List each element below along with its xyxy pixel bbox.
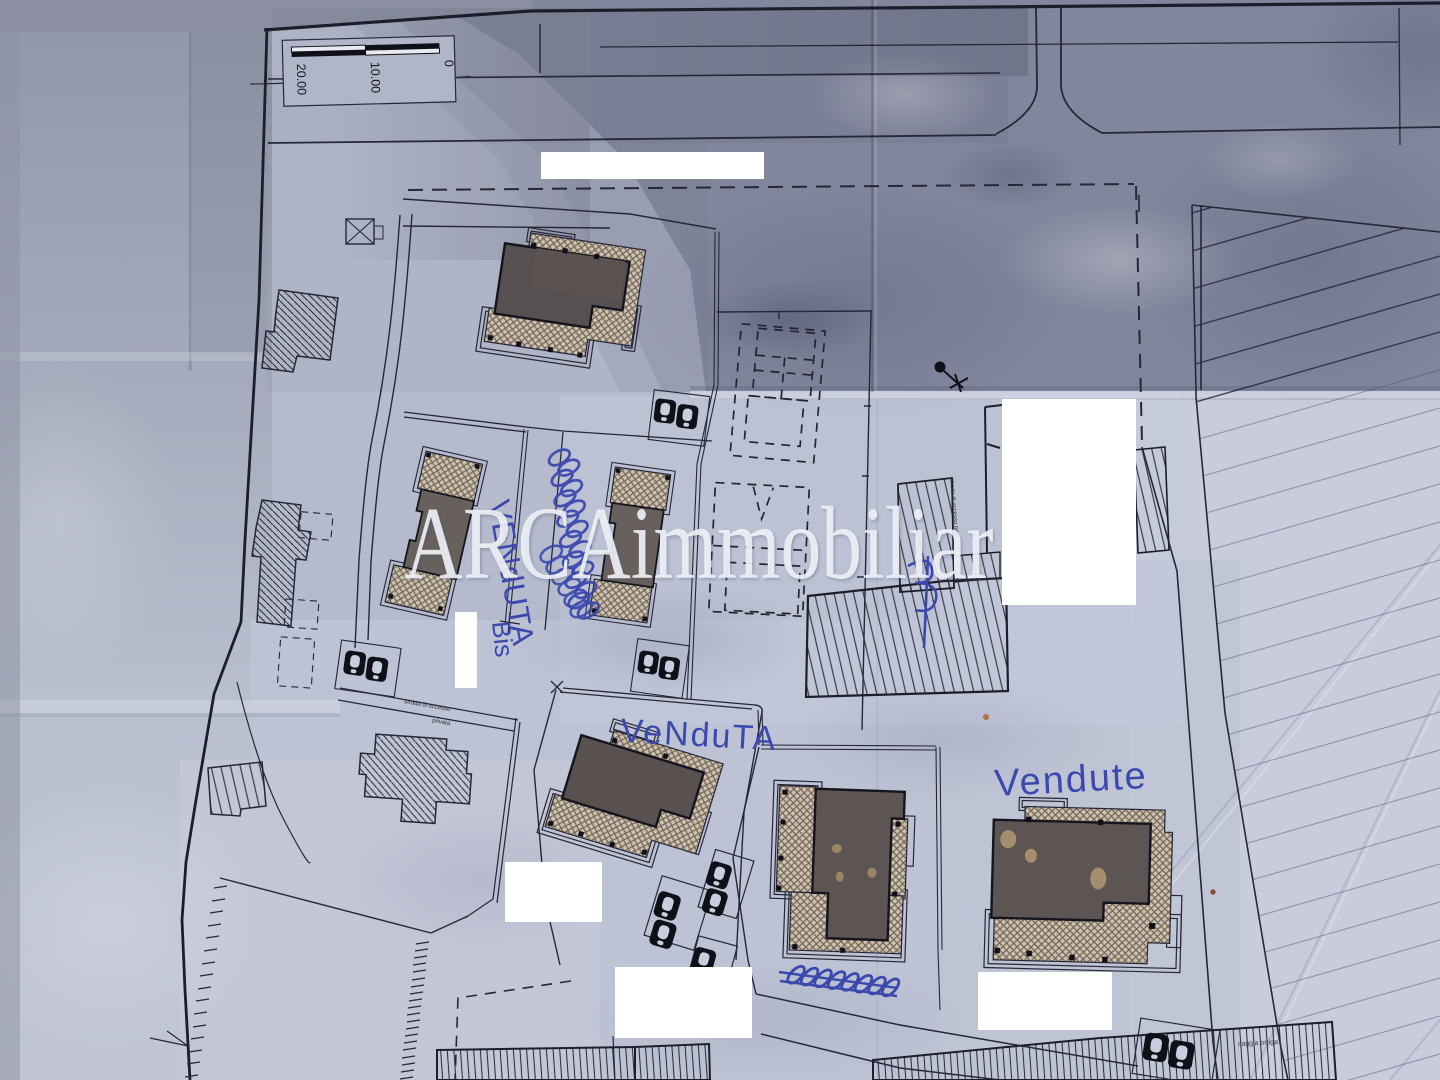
svg-text:20.00: 20.00 (294, 64, 309, 96)
svg-text:Bis: Bis (486, 619, 520, 658)
svg-text:Vendute: Vendute (993, 755, 1148, 805)
svg-text:0: 0 (442, 60, 456, 67)
svg-text:10.00: 10.00 (368, 62, 383, 94)
svg-text:ARCAimmobiliar: ARCAimmobiliar (404, 487, 994, 602)
